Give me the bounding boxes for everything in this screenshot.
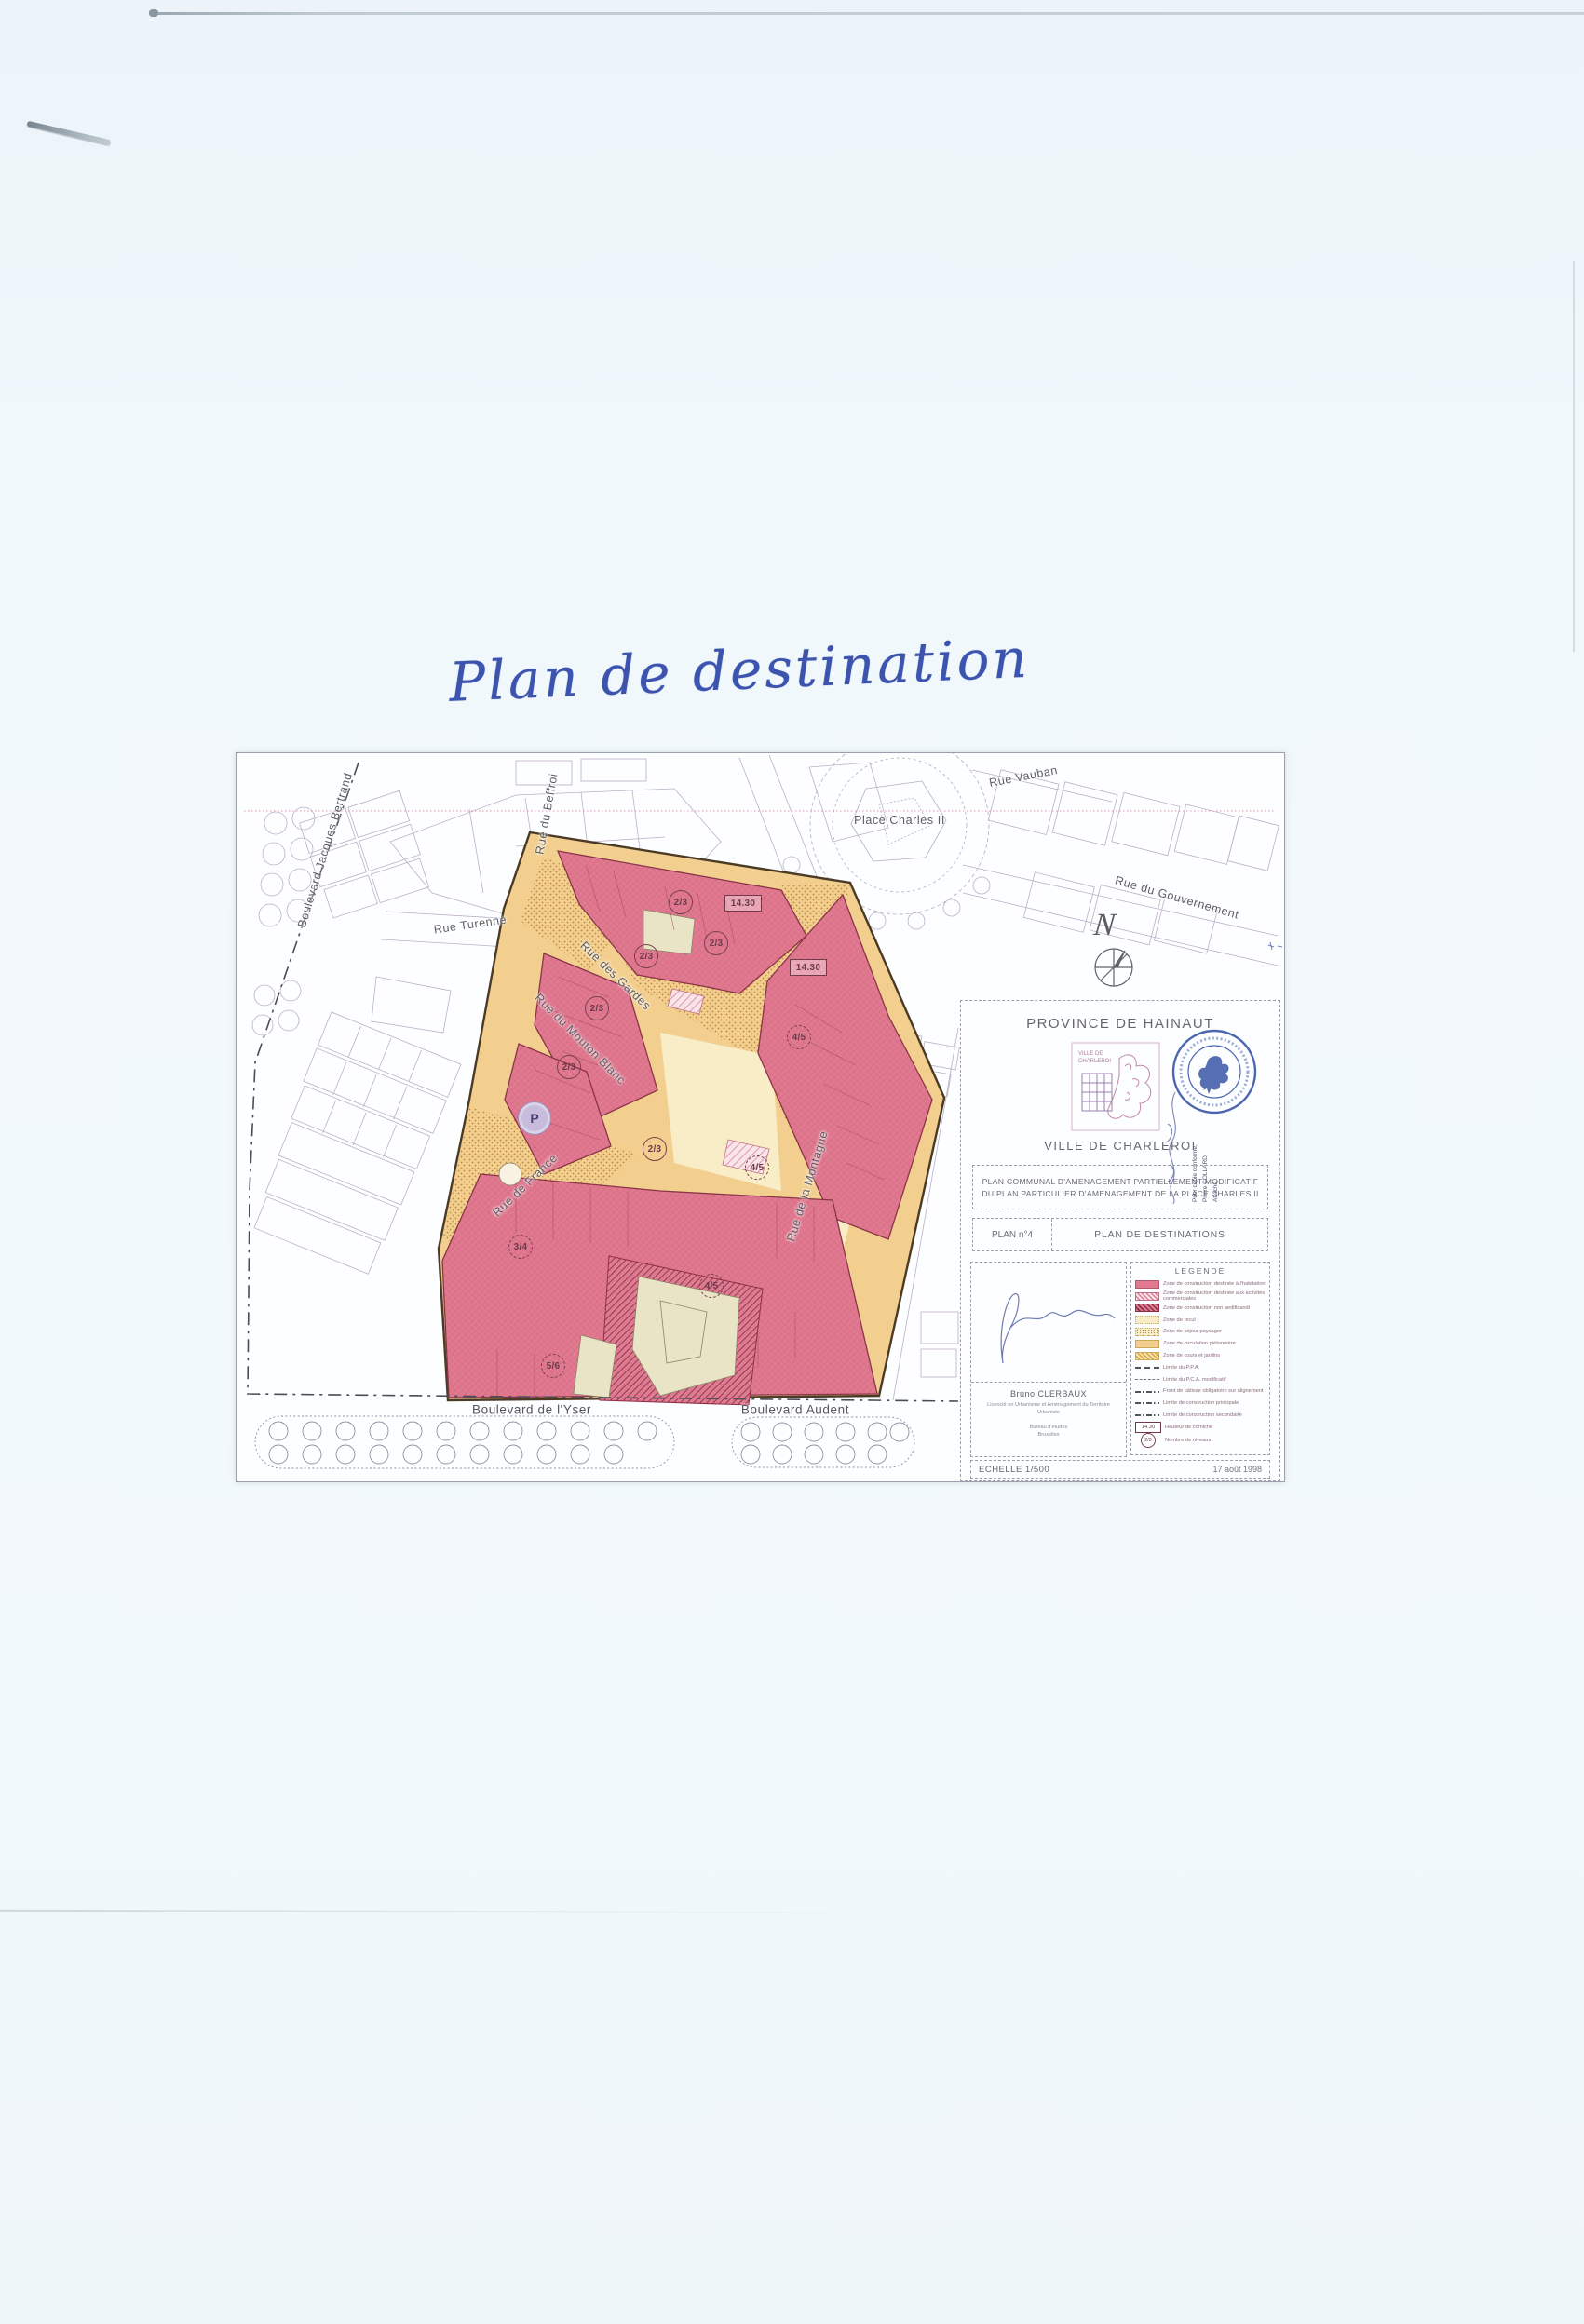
zone-label: 5/6 (541, 1354, 565, 1378)
zone-label: 3/4 (508, 1235, 533, 1259)
parking-marker: P (518, 1101, 551, 1135)
author-signature (979, 1274, 1118, 1376)
parking-letter: P (530, 1111, 538, 1126)
title-block: PROVINCE DE HAINAUT VILLE DE CHARLEROI (960, 1000, 1280, 1481)
legend-swatch-orange-hatch (1135, 1352, 1159, 1360)
plan-number-row: PLAN n°4 PLAN DE DESTINATIONS (972, 1218, 1268, 1251)
author-divider (971, 1382, 1126, 1383)
scan-artifact-topline (156, 12, 1584, 15)
legend-symbol-niveaux: 2/3 (1141, 1433, 1156, 1448)
svg-text:CHARLEROI: CHARLEROI (1078, 1059, 1111, 1064)
zone-label: 4/5 (745, 1155, 769, 1180)
author-box: Bruno CLERBAUX Licencié en Urbanisme et … (970, 1262, 1127, 1457)
legend-title: LEGENDE (1135, 1266, 1266, 1276)
plan-name: PLAN DE DESTINATIONS (1052, 1219, 1267, 1250)
legend: LEGENDE Zone de construction destinée à … (1130, 1262, 1270, 1455)
scale-label: ECHELLE 1/500 (979, 1465, 1049, 1475)
staple-mark (27, 121, 112, 146)
scale-row: ECHELLE 1/500 17 août 1998 (970, 1460, 1270, 1479)
compass-rose (1095, 949, 1132, 986)
author-credential: Bruxelles (977, 1432, 1120, 1438)
legend-item: Front de bâtisse obligatoire sur alignem… (1135, 1385, 1266, 1398)
legend-item: Zone de recul (1135, 1314, 1266, 1326)
author-credential: Bureau d'études (977, 1425, 1120, 1430)
legend-swatch-orange (1135, 1340, 1159, 1348)
legend-swatch-pale-yellow-dot (1135, 1328, 1159, 1336)
scanned-page: Plan de destination (0, 0, 1584, 2324)
legend-swatch-pink-solid (1135, 1280, 1159, 1289)
legend-swatch-pink-hatch-light (1135, 1292, 1159, 1301)
ppa-zone (439, 832, 944, 1405)
legend-item: Limite du P.C.A. modificatif (1135, 1373, 1266, 1385)
legend-swatch-dashdot (1135, 1391, 1159, 1393)
legend-item: Zone de circulation piétonnière (1135, 1338, 1266, 1350)
legend-swatch-pink-hatch-dense (1135, 1304, 1159, 1312)
street-label-bd-audent: Boulevard Audent (741, 1403, 849, 1417)
legend-item: 14.30 Hauteur de corniche (1135, 1422, 1266, 1434)
pen-mark (1268, 942, 1282, 950)
legend-item: Zone de séjour paysager (1135, 1326, 1266, 1338)
paper-fold-right (1573, 261, 1575, 652)
zone-label: 14.30 (724, 895, 762, 912)
handwritten-title: Plan de destination (448, 630, 934, 714)
author-credential: Urbaniste (977, 1410, 1120, 1415)
zone-label: 4/5 (699, 1274, 724, 1298)
legend-item: Zone de construction non aedificandi (1135, 1303, 1266, 1315)
charleroi-seal: VILLE DE CHARLEROI (1071, 1042, 1160, 1131)
legend-swatch-dash-bold (1135, 1367, 1159, 1369)
plan-title-box: PLAN COMMUNAL D'AMENAGEMENT PARTIELLEMEN… (972, 1165, 1268, 1209)
zone-label: 14.30 (790, 959, 827, 976)
street-label-bd-yser: Boulevard de l'Yser (472, 1403, 591, 1417)
zone-label: 2/3 (669, 890, 693, 914)
legend-swatch-dashdot (1135, 1402, 1159, 1404)
paper-crease (0, 1910, 894, 1914)
legend-item: Zone de construction destinée à l'habita… (1135, 1278, 1266, 1290)
city-title: VILLE DE CHARLEROI (961, 1139, 1279, 1153)
date-label: 17 août 1998 (1212, 1465, 1262, 1474)
map-sheet: Boulevard Jacques Bertrand Rue du Beffro… (236, 752, 1285, 1482)
legend-item: Limite du P.P.A. (1135, 1362, 1266, 1374)
boulevard-trees (255, 1416, 914, 1468)
zone-label: 2/3 (557, 1055, 581, 1079)
zone-label: 2/3 (704, 931, 728, 955)
legend-swatch-dashdot (1135, 1414, 1159, 1416)
legend-item: Limite de construction secondaire (1135, 1410, 1266, 1422)
zone-label: 2/3 (585, 996, 609, 1020)
legend-symbol-hauteur: 14.30 (1135, 1422, 1161, 1433)
legend-item: Zone de construction destinée aux activi… (1135, 1290, 1266, 1303)
plan-title-line2: DU PLAN PARTICULIER D'AMENAGEMENT DE LA … (982, 1189, 1258, 1198)
plan-number: PLAN n°4 (973, 1219, 1052, 1250)
zone-label: 2/3 (643, 1137, 667, 1161)
legend-item: Zone de cours et jardins (1135, 1350, 1266, 1362)
legend-item: Limite de construction principale (1135, 1398, 1266, 1410)
author-credential: Licencié en Urbanisme et Aménagement du … (977, 1402, 1120, 1408)
plan-title-line1: PLAN COMMUNAL D'AMENAGEMENT PARTIELLEMEN… (982, 1177, 1259, 1186)
legend-swatch-pale-yellow (1135, 1316, 1159, 1324)
legend-swatch-dash (1135, 1379, 1159, 1380)
author-name: Bruno CLERBAUX (971, 1389, 1126, 1398)
zone-label: 2/3 (634, 944, 658, 968)
zone-label: 4/5 (787, 1025, 811, 1049)
street-label-place-charles-ii: Place Charles II (854, 814, 945, 827)
seal-text: VILLE DE (1078, 1051, 1103, 1057)
north-label: N (1092, 908, 1117, 943)
legend-item: 2/3 Nombre de niveaux (1135, 1433, 1266, 1448)
